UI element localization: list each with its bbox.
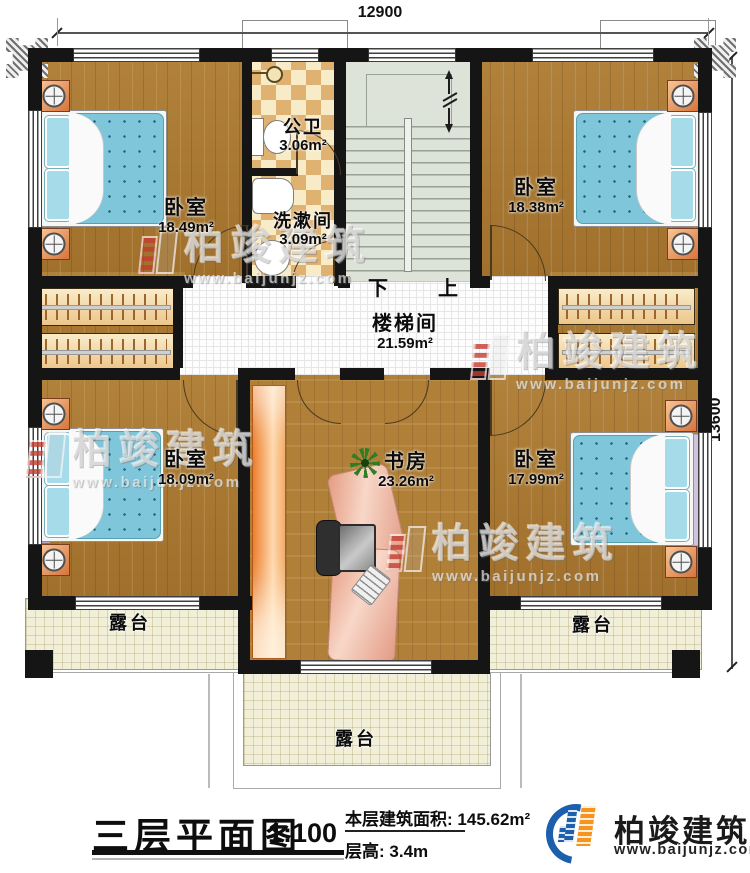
wall — [173, 288, 183, 368]
shower-head-icon — [266, 66, 283, 83]
title-underline — [92, 850, 344, 855]
pillow — [663, 437, 689, 488]
title-underline-2 — [92, 858, 344, 860]
lamp-icon — [670, 405, 693, 428]
stairwell — [344, 58, 472, 282]
room-label-terrace-bottom: 露台 — [296, 730, 416, 749]
logo-swoosh — [534, 792, 618, 873]
door-leaf — [236, 380, 238, 435]
bed-sheet — [69, 431, 104, 539]
terrace-pier — [25, 650, 53, 678]
room-label-study: 书房 23.26m² — [346, 452, 466, 490]
nightstand — [665, 546, 697, 578]
pillow — [45, 486, 71, 537]
pillow — [45, 116, 71, 168]
floor-height-row: 层高: 3.4m — [345, 837, 428, 862]
nightstand — [38, 228, 70, 260]
room-label-bedroom-br: 卧室 17.99m² — [476, 450, 596, 488]
study-cabinet — [252, 385, 286, 659]
closet-rail — [562, 350, 691, 355]
window — [698, 112, 712, 228]
wardrobe — [558, 333, 695, 370]
plan-scale: 1:100 — [268, 818, 337, 849]
window — [75, 596, 200, 610]
lamp-icon — [43, 403, 66, 426]
bed-sheet — [636, 113, 671, 224]
terrace-bottom-floor — [243, 672, 491, 766]
wall — [470, 276, 490, 288]
extension-line — [57, 18, 58, 46]
room-label-bedroom-tr: 卧室 18.38m² — [476, 178, 596, 216]
nightstand — [667, 80, 699, 112]
window — [28, 110, 42, 228]
room-label-terrace-right: 露台 — [533, 616, 653, 635]
extension-line — [708, 18, 709, 46]
wall — [238, 368, 295, 380]
room-label-terrace-left: 露台 — [70, 614, 190, 633]
door-leaf — [490, 225, 492, 280]
window — [28, 427, 42, 545]
stair-break-arrow — [445, 124, 453, 133]
railing-line — [25, 672, 241, 673]
closet-rail — [41, 305, 171, 310]
dimension-right-line — [731, 57, 733, 669]
bed-sheet — [630, 435, 665, 543]
terrace-pier — [672, 650, 700, 678]
lamp-icon — [672, 85, 695, 108]
nightstand — [38, 544, 70, 576]
floor-height-value: 3.4m — [389, 842, 428, 861]
floor-area-row: 本层建筑面积: 145.62m² — [345, 805, 530, 830]
wall — [28, 368, 180, 380]
pillow — [669, 116, 695, 168]
pillow — [663, 490, 689, 541]
wall — [470, 55, 482, 286]
stair-railing — [404, 118, 412, 272]
stair-break-line — [448, 78, 450, 94]
floor-area-value: 145.62m² — [457, 810, 530, 829]
brand-logo-icon — [546, 800, 608, 860]
room-label-bedroom-bl: 卧室 18.09m² — [126, 450, 246, 488]
door-leaf — [490, 380, 492, 435]
wall — [430, 368, 490, 380]
window — [520, 596, 662, 610]
room-label-bedroom-tl: 卧室 18.49m² — [126, 198, 246, 236]
lower-floor-line — [520, 674, 522, 788]
window — [698, 432, 712, 548]
closet-rail — [562, 305, 691, 310]
door-leaf — [246, 225, 248, 280]
wall — [478, 380, 490, 674]
pillow — [45, 433, 71, 484]
wardrobe — [37, 333, 175, 370]
window — [300, 660, 432, 674]
washbasin-icon — [252, 178, 294, 214]
pillow — [669, 169, 695, 221]
floor-area-label: 本层建筑面积: — [345, 810, 453, 829]
wall — [246, 168, 298, 176]
wall — [548, 276, 712, 288]
dimension-top-label: 12900 — [340, 4, 420, 22]
dimension-top-line — [57, 32, 709, 34]
nightstand — [38, 80, 70, 112]
window — [271, 48, 319, 62]
room-label-stair-hall: 楼梯间 21.59m² — [345, 314, 465, 352]
lamp-icon — [670, 551, 693, 574]
wall — [548, 288, 558, 368]
wall — [340, 368, 384, 380]
stair-up-label: 上 — [438, 272, 458, 301]
pillow — [45, 169, 71, 221]
info-separator — [345, 830, 465, 832]
railing-line — [486, 672, 700, 673]
wardrobe — [558, 288, 695, 325]
wall — [545, 368, 712, 380]
window — [532, 48, 654, 62]
wall — [238, 380, 250, 674]
window — [368, 48, 456, 62]
lamp-icon — [43, 549, 66, 572]
room-label-bathroom: 公卫 3.06m² — [255, 118, 351, 154]
nightstand — [667, 228, 699, 260]
window — [73, 48, 200, 62]
lower-floor-line — [208, 674, 210, 788]
stair-down-label: 下 — [368, 272, 388, 301]
wall — [338, 276, 350, 288]
bed-sheet — [69, 113, 104, 224]
closet-rail — [41, 350, 171, 355]
floor-height-label: 层高: — [345, 842, 385, 861]
wall — [28, 276, 193, 288]
stair-break-line — [448, 108, 450, 124]
lamp-icon — [43, 233, 66, 256]
room-label-washroom: 洗漱间 3.09m² — [250, 212, 356, 248]
wardrobe — [37, 288, 175, 326]
nightstand — [665, 400, 697, 432]
nightstand — [38, 398, 70, 430]
wall — [246, 276, 296, 288]
floor-plan-canvas: 12900 13600 下 上 — [0, 0, 750, 873]
brand-url: www.baijunjz.com — [614, 842, 750, 858]
lamp-icon — [672, 233, 695, 256]
lamp-icon — [43, 85, 66, 108]
